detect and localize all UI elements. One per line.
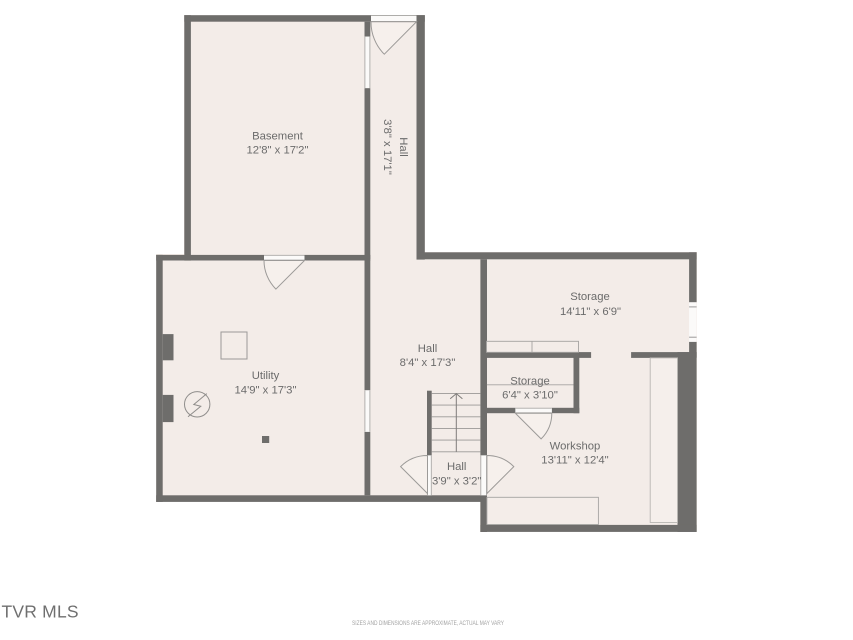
svg-text:Hall: Hall [418,343,437,355]
svg-text:Storage: Storage [510,376,550,388]
svg-text:Utility: Utility [252,370,280,382]
svg-text:3'8" x 17'1": 3'8" x 17'1" [381,119,393,175]
svg-text:12'8" x 17'2": 12'8" x 17'2" [247,145,309,157]
svg-text:Hall: Hall [397,137,409,156]
svg-text:14'11" x 6'9": 14'11" x 6'9" [560,306,621,318]
svg-text:14'9" x 17'3": 14'9" x 17'3" [235,385,297,397]
svg-text:SIZES AND DIMENSIONS ARE APPRO: SIZES AND DIMENSIONS ARE APPROXIMATE, AC… [352,620,504,627]
svg-text:Workshop: Workshop [550,441,601,453]
svg-text:8'4" x 17'3": 8'4" x 17'3" [400,357,456,369]
svg-text:Basement: Basement [252,131,304,143]
svg-text:13'11" x 12'4": 13'11" x 12'4" [541,455,608,467]
svg-text:3'9" x 3'2": 3'9" x 3'2" [432,475,481,487]
svg-text:TVR MLS: TVR MLS [2,602,79,622]
svg-text:6'4" x 3'10": 6'4" x 3'10" [502,390,558,402]
svg-text:Storage: Storage [570,291,610,303]
svg-text:Hall: Hall [447,461,466,473]
